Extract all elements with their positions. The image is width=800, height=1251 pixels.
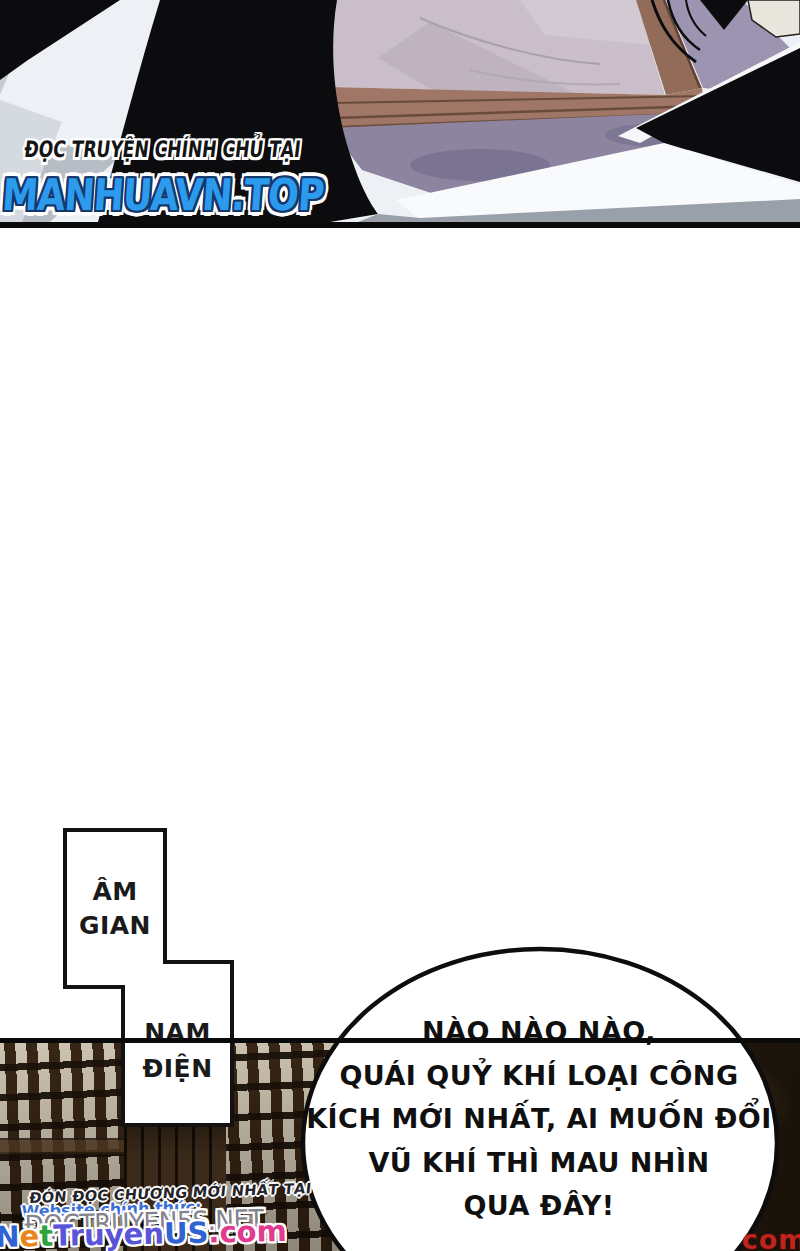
- checker-mark: [672, 1233, 698, 1249]
- site-letter: m: [256, 1214, 287, 1249]
- bubble-line: NÀO NÀO NÀO,: [298, 1010, 780, 1054]
- site-letter: c: [219, 1215, 237, 1249]
- top-panel-border: [0, 222, 800, 228]
- manga-page: ĐỌC TRUYỆN CHÍNH CHỦ TẠI MANHUAVN.TOP co…: [0, 0, 800, 1251]
- bubble-line: VŨ KHÍ THÌ MAU NHÌN: [298, 1141, 780, 1185]
- location-label-nam-dien: NAM ĐIỆN: [123, 962, 232, 1125]
- site-letter: .: [208, 1215, 220, 1249]
- bubble-line: QUÁI QUỶ KHÍ LOẠI CÔNG: [298, 1054, 780, 1098]
- bottom-watermark-site: NetTruyenUS.com: [0, 1214, 287, 1251]
- top-art-panel: ĐỌC TRUYỆN CHÍNH CHỦ TẠI MANHUAVN.TOP: [0, 0, 800, 228]
- top-watermark-promo: ĐỌC TRUYỆN CHÍNH CHỦ TẠI: [23, 136, 273, 162]
- top-watermark-site: MANHUAVN.TOP: [0, 170, 317, 221]
- wood-beam: [0, 1138, 128, 1154]
- site-letter: r: [69, 1218, 84, 1251]
- site-letter: n: [143, 1216, 164, 1250]
- site-letter: y: [104, 1217, 124, 1251]
- site-letter: S: [187, 1216, 209, 1250]
- label-line: GIAN: [79, 909, 151, 943]
- label-line: ÂM: [92, 875, 137, 909]
- red-watermark-fragment: com: [742, 1224, 800, 1251]
- bubble-line: QUA ĐÂY!: [298, 1184, 780, 1228]
- site-letter: e: [123, 1217, 143, 1251]
- site-letter: o: [236, 1215, 257, 1249]
- site-letter: t: [39, 1219, 54, 1251]
- label-line: NAM: [144, 1015, 211, 1051]
- site-letter: U: [164, 1216, 188, 1250]
- label-line: ĐIỆN: [142, 1051, 212, 1087]
- bottom-panel-border: [0, 1038, 800, 1043]
- site-letter: e: [19, 1219, 39, 1251]
- site-letter: N: [0, 1219, 20, 1251]
- bubble-line: KÍCH MỚI NHẤT, AI MUỐN ĐỔI: [298, 1097, 780, 1141]
- site-letter: T: [53, 1218, 70, 1251]
- site-letter: u: [84, 1218, 105, 1251]
